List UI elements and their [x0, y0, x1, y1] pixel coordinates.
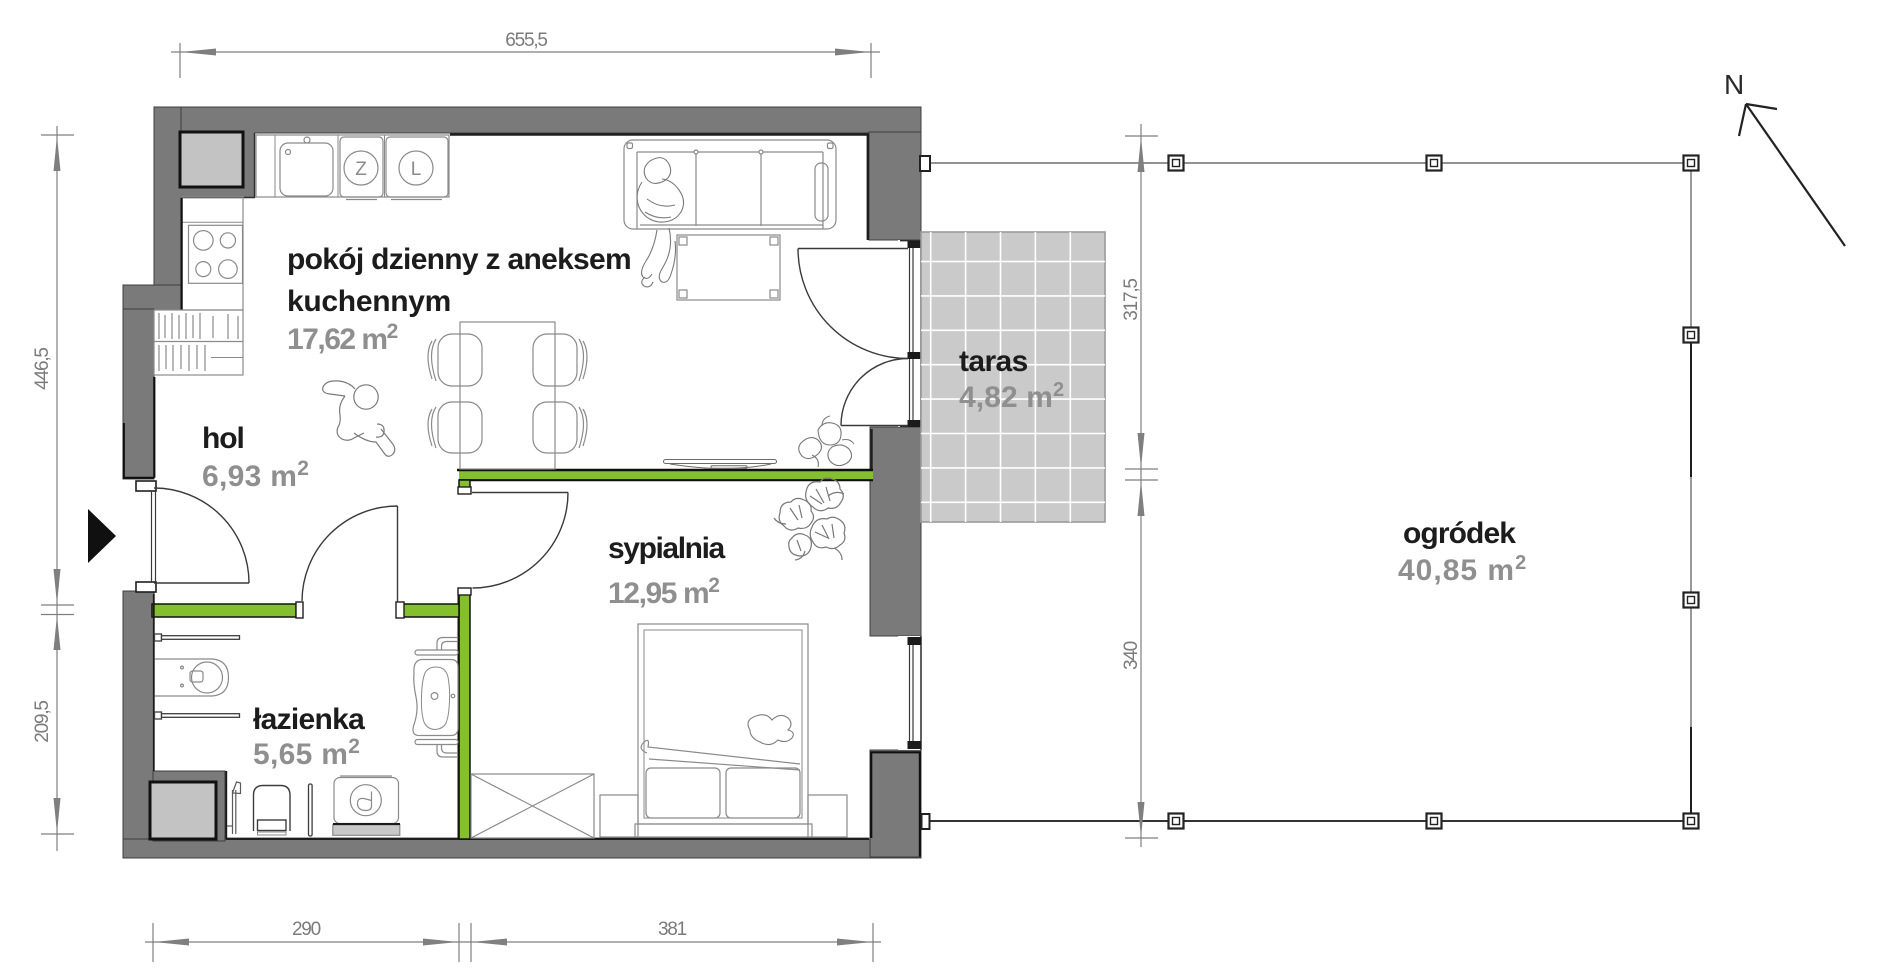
svg-text:pokój dzienny z aneksem: pokój dzienny z aneksem — [287, 243, 631, 276]
svg-text:446,5: 446,5 — [32, 348, 53, 390]
svg-text:317,5: 317,5 — [1121, 279, 1142, 321]
svg-text:655,5: 655,5 — [505, 30, 547, 51]
svg-text:Z: Z — [355, 159, 367, 180]
svg-text:kuchennym: kuchennym — [287, 285, 451, 318]
svg-text:łazienka: łazienka — [253, 703, 365, 736]
svg-text:340: 340 — [1121, 641, 1142, 670]
svg-text:290: 290 — [292, 919, 321, 940]
svg-text:5,65 m2: 5,65 m2 — [253, 735, 360, 771]
svg-text:sypialnia: sypialnia — [608, 532, 726, 565]
svg-text:4,82 m2: 4,82 m2 — [959, 379, 1064, 414]
svg-text:40,85 m2: 40,85 m2 — [1398, 552, 1527, 587]
svg-text:taras: taras — [959, 345, 1028, 378]
svg-text:209,5: 209,5 — [32, 701, 53, 743]
svg-text:N: N — [1724, 69, 1744, 100]
svg-text:17,62 m2: 17,62 m2 — [287, 320, 398, 356]
svg-text:6,93 m2: 6,93 m2 — [202, 457, 309, 493]
svg-text:ogródek: ogródek — [1403, 517, 1516, 550]
svg-text:12,95 m2: 12,95 m2 — [608, 574, 719, 610]
svg-text:hol: hol — [202, 422, 244, 455]
svg-text:L: L — [411, 159, 422, 180]
svg-text:381: 381 — [658, 919, 687, 940]
